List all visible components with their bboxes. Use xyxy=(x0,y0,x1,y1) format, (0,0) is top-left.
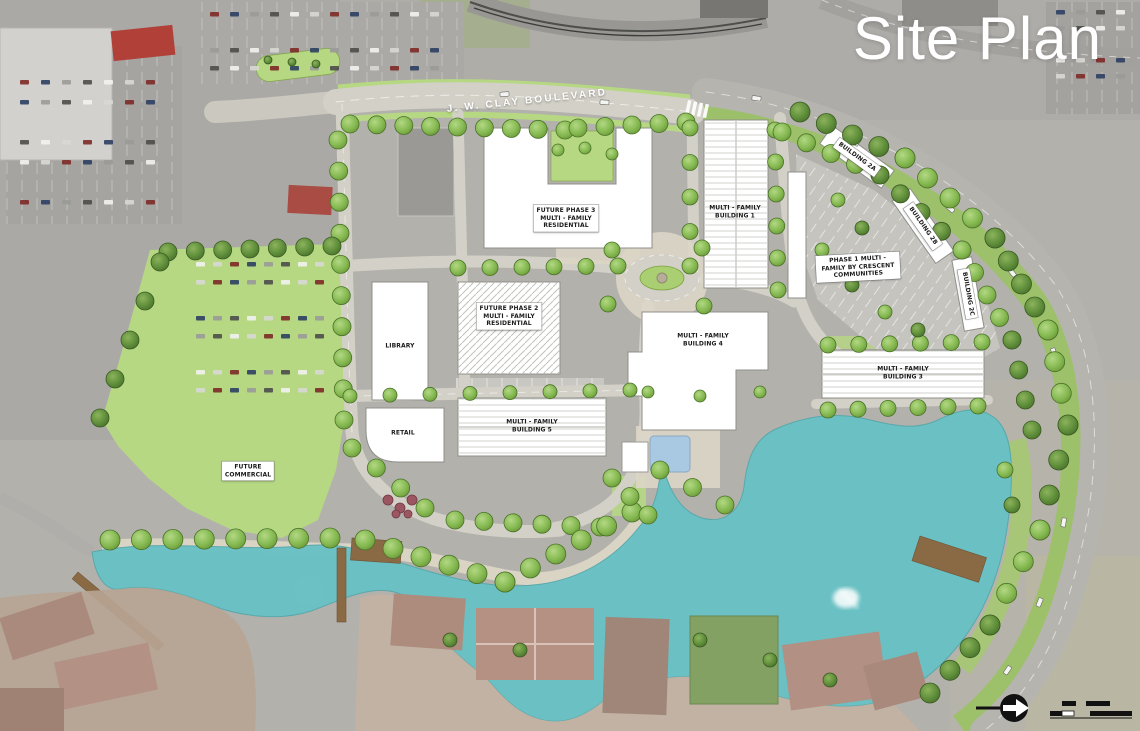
label-future-commercial: FUTURE COMMERCIAL xyxy=(222,462,274,481)
page-title: Site Plan xyxy=(853,6,1102,72)
building-phase1-garage xyxy=(788,172,806,298)
label-future-phase-3: FUTURE PHASE 3 MULTI - FAMILY RESIDENTIA… xyxy=(534,205,599,232)
building-library xyxy=(372,282,428,400)
label-mf-building-4: MULTI - FAMILY BUILDING 4 xyxy=(677,333,729,348)
label-retail: RETAIL xyxy=(391,429,415,437)
label-future-phase-2: FUTURE PHASE 2 MULTI - FAMILY RESIDENTIA… xyxy=(477,303,542,330)
label-phase-1-crescent: PHASE 1 MULTI - FAMILY BY CRESCENT COMMU… xyxy=(815,252,900,283)
label-mf-building-1: MULTI - FAMILY BUILDING 1 xyxy=(709,205,761,220)
site-plan-canvas: Site Plan J. W. CLAY BOULEVARD FUTURE PH… xyxy=(0,0,1140,731)
site-plan-map xyxy=(0,0,1140,731)
label-mf-building-5: MULTI - FAMILY BUILDING 5 xyxy=(506,419,558,434)
label-mf-building-3: MULTI - FAMILY BUILDING 3 xyxy=(877,366,929,381)
lake-fountain xyxy=(833,588,859,608)
phase3-courtyard xyxy=(551,131,613,181)
label-library: LIBRARY xyxy=(385,342,414,350)
